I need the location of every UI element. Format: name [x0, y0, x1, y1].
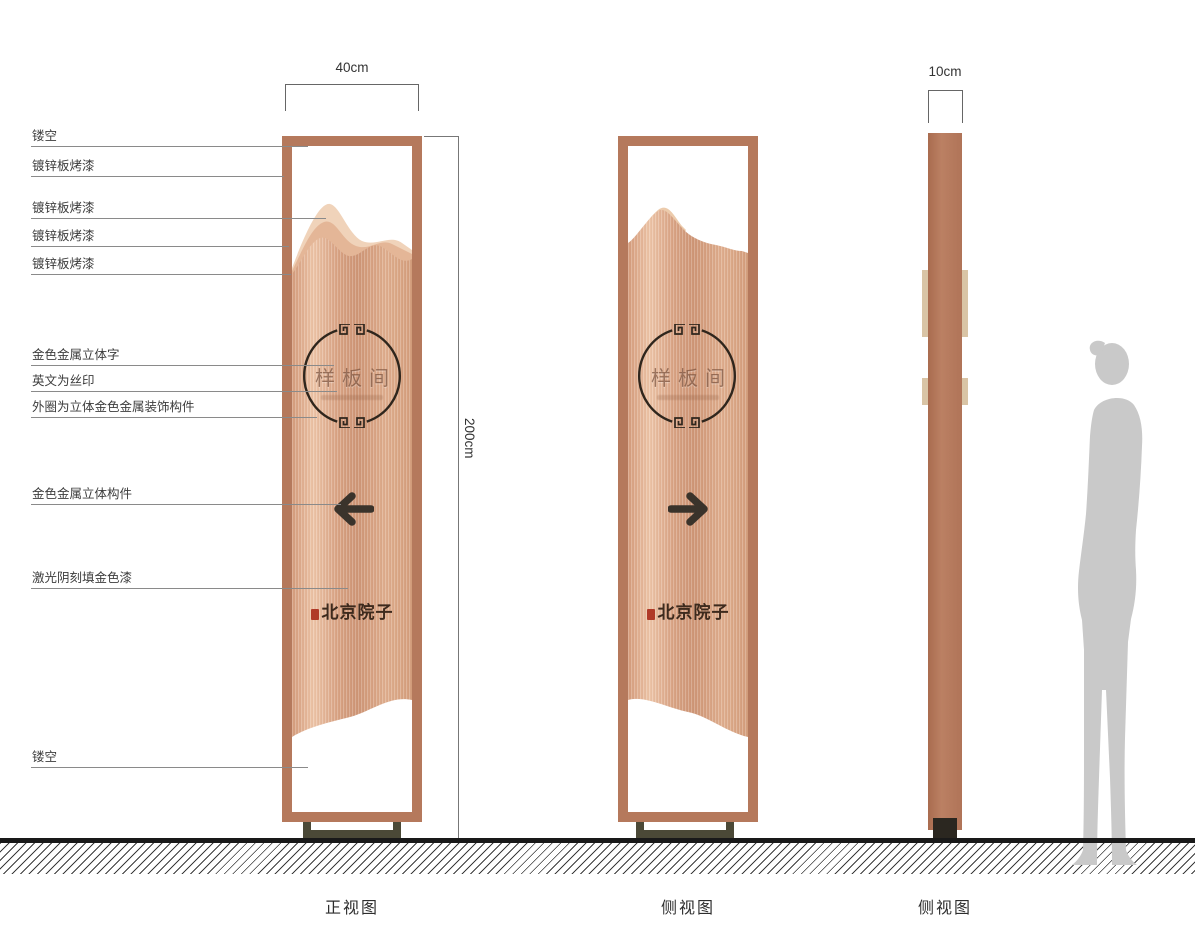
callout-gold-3d-letters: 金色金属立体字 — [31, 348, 334, 366]
arrow-right-icon — [668, 490, 712, 528]
callout-galvanized-4: 镀锌板烤漆 — [31, 257, 291, 275]
side-profile-foot — [933, 818, 957, 840]
mountain-graphic — [628, 146, 748, 812]
front-view-panel: 样板间 北京院子 — [282, 136, 422, 822]
brand-name-text: 北京院子 — [658, 603, 730, 622]
caption-side-view-1: 侧视图 — [618, 894, 758, 918]
caption-side-view-2: 侧视图 — [895, 894, 995, 918]
callout-gold-3d-component: 金色金属立体构件 — [31, 487, 341, 505]
dim-height-line — [458, 136, 459, 838]
brand-seal-icon — [647, 609, 655, 620]
dim-width-bracket — [285, 84, 419, 111]
side-profile-post — [928, 133, 962, 830]
dim-height-label: 200cm — [462, 418, 477, 459]
callout-galvanized-3: 镀锌板烤漆 — [31, 229, 289, 247]
brand-seal-icon — [311, 609, 319, 620]
english-silkscreen-faint — [657, 395, 719, 400]
callout-hollow-top: 镂空 — [31, 129, 308, 147]
front-view-base — [303, 822, 401, 838]
side-view-base — [636, 822, 734, 838]
person-silhouette — [1038, 338, 1165, 875]
callout-galvanized-1: 镀锌板烤漆 — [31, 159, 284, 177]
brand-name-text: 北京院子 — [322, 603, 394, 622]
ground-line — [0, 838, 1195, 843]
brand-logo: 北京院子 — [628, 598, 748, 623]
dim-width-label: 40cm — [285, 60, 419, 75]
callout-hollow-bottom: 镂空 — [31, 750, 308, 768]
side-profile-tab — [962, 270, 968, 337]
dim-depth-label: 10cm — [895, 64, 995, 79]
english-silkscreen-faint — [321, 395, 383, 400]
mountain-graphic — [292, 146, 412, 812]
dim-height-tick — [424, 136, 459, 137]
dim-depth-bracket — [928, 90, 963, 123]
room-name-text: 样板间 — [628, 362, 748, 391]
brand-logo: 北京院子 — [292, 598, 412, 623]
callout-outer-ring-ornament: 外圈为立体金色金属装饰构件 — [31, 400, 317, 418]
callout-laser-engraved-gold: 激光阴刻填金色漆 — [31, 571, 348, 589]
caption-front-view: 正视图 — [282, 894, 422, 918]
ground-hatch — [0, 843, 1195, 874]
side-view-panel: 样板间 北京院子 — [618, 136, 758, 822]
signage-spec-drawing: 镂空 镀锌板烤漆 镀锌板烤漆 镀锌板烤漆 镀锌板烤漆 金色金属立体字 英文为丝印… — [0, 0, 1195, 927]
side-profile-tab — [922, 270, 928, 337]
callout-galvanized-2: 镀锌板烤漆 — [31, 201, 326, 219]
side-profile-tab — [962, 378, 968, 405]
callout-english-silkscreen: 英文为丝印 — [31, 374, 337, 392]
side-profile-tab — [922, 378, 928, 405]
